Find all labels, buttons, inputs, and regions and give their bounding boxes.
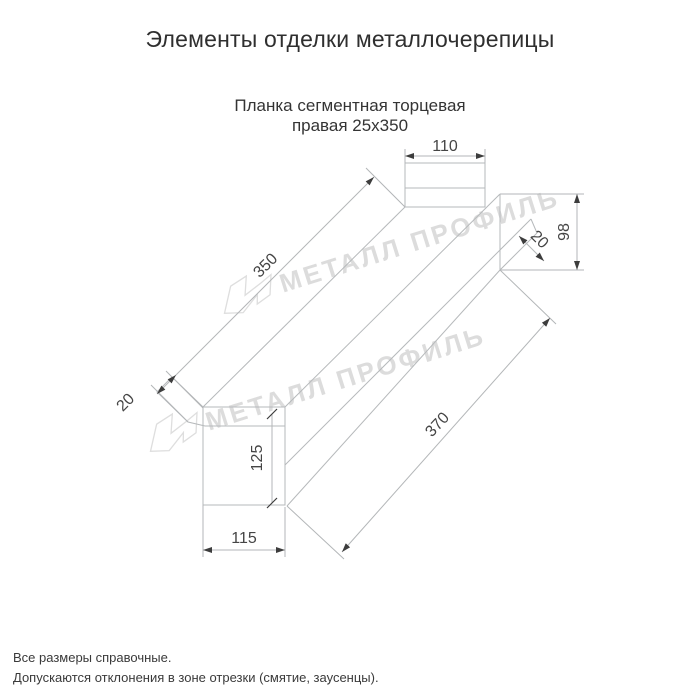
dim-label-20-right: 20: [527, 228, 552, 253]
watermark-text: МЕТАЛЛ ПРОФИЛЬ: [276, 182, 563, 298]
dim-label-98: 98: [556, 223, 573, 241]
drawing-page: Элементы отделки металлочерепицы Планка …: [0, 0, 700, 700]
footer-note-1: Все размеры справочные.: [13, 648, 379, 668]
footer-note-2: Допускаются отклонения в зоне отрезки (с…: [13, 668, 379, 688]
dim-label-20-left: 20: [114, 390, 139, 415]
dim-label-110: 110: [432, 138, 458, 155]
dim-label-115: 115: [231, 530, 257, 547]
dimension-length-370: 370: [287, 270, 556, 559]
dim-label-350: 350: [250, 250, 281, 281]
metall-profil-logo-icon: [216, 269, 280, 318]
top-end-section: [405, 163, 485, 207]
dimension-end-width: 115: [203, 505, 285, 557]
metall-profil-logo-icon: [142, 407, 206, 456]
footer-notes: Все размеры справочные. Допускаются откл…: [13, 648, 379, 688]
dimension-top-width: 110: [405, 138, 485, 163]
watermark-upper: МЕТАЛЛ ПРОФИЛЬ: [216, 179, 564, 318]
technical-drawing: МЕТАЛЛ ПРОФИЛЬ МЕТАЛЛ ПРОФИЛЬ: [0, 0, 700, 700]
dim-label-125: 125: [249, 445, 266, 472]
dimension-right-hem: 20: [519, 228, 552, 261]
dimension-end-height: 125: [249, 409, 277, 508]
dim-label-370: 370: [422, 409, 453, 440]
